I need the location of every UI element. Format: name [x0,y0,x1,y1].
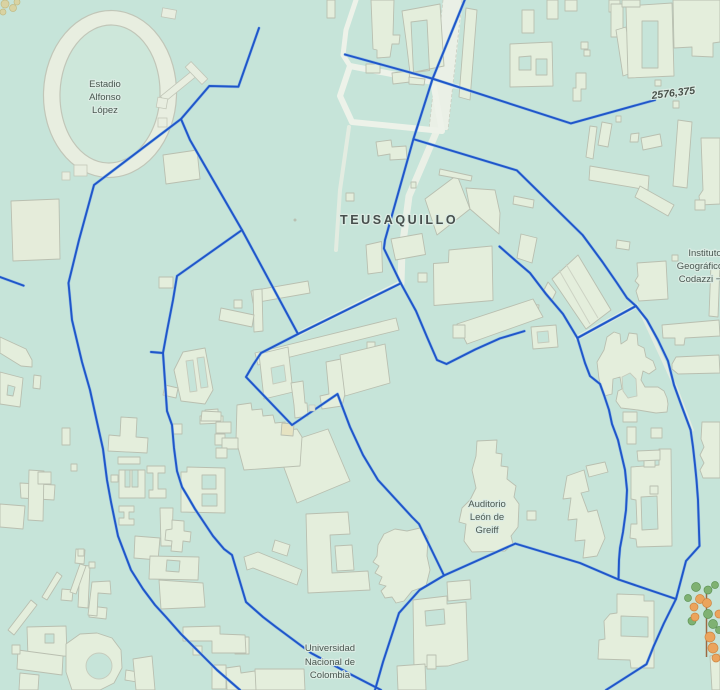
svg-text:León de: León de [470,512,504,523]
svg-text:Instituto: Instituto [688,248,720,259]
svg-text:Auditorio: Auditorio [468,499,506,510]
svg-text:López: López [92,105,118,116]
svg-text:Geográfico: Geográfico [677,261,720,272]
svg-text:Estadio: Estadio [89,79,121,90]
svg-text:Greiff: Greiff [475,525,498,536]
svg-text:Codazzi −: Codazzi − [679,274,720,285]
svg-text:TEUSAQUILLO: TEUSAQUILLO [340,213,458,227]
svg-text:Alfonso: Alfonso [89,92,121,103]
svg-text:Nacional de: Nacional de [305,657,355,668]
svg-text:Universidad: Universidad [305,643,355,654]
svg-text:Colombia: Colombia [310,670,351,681]
